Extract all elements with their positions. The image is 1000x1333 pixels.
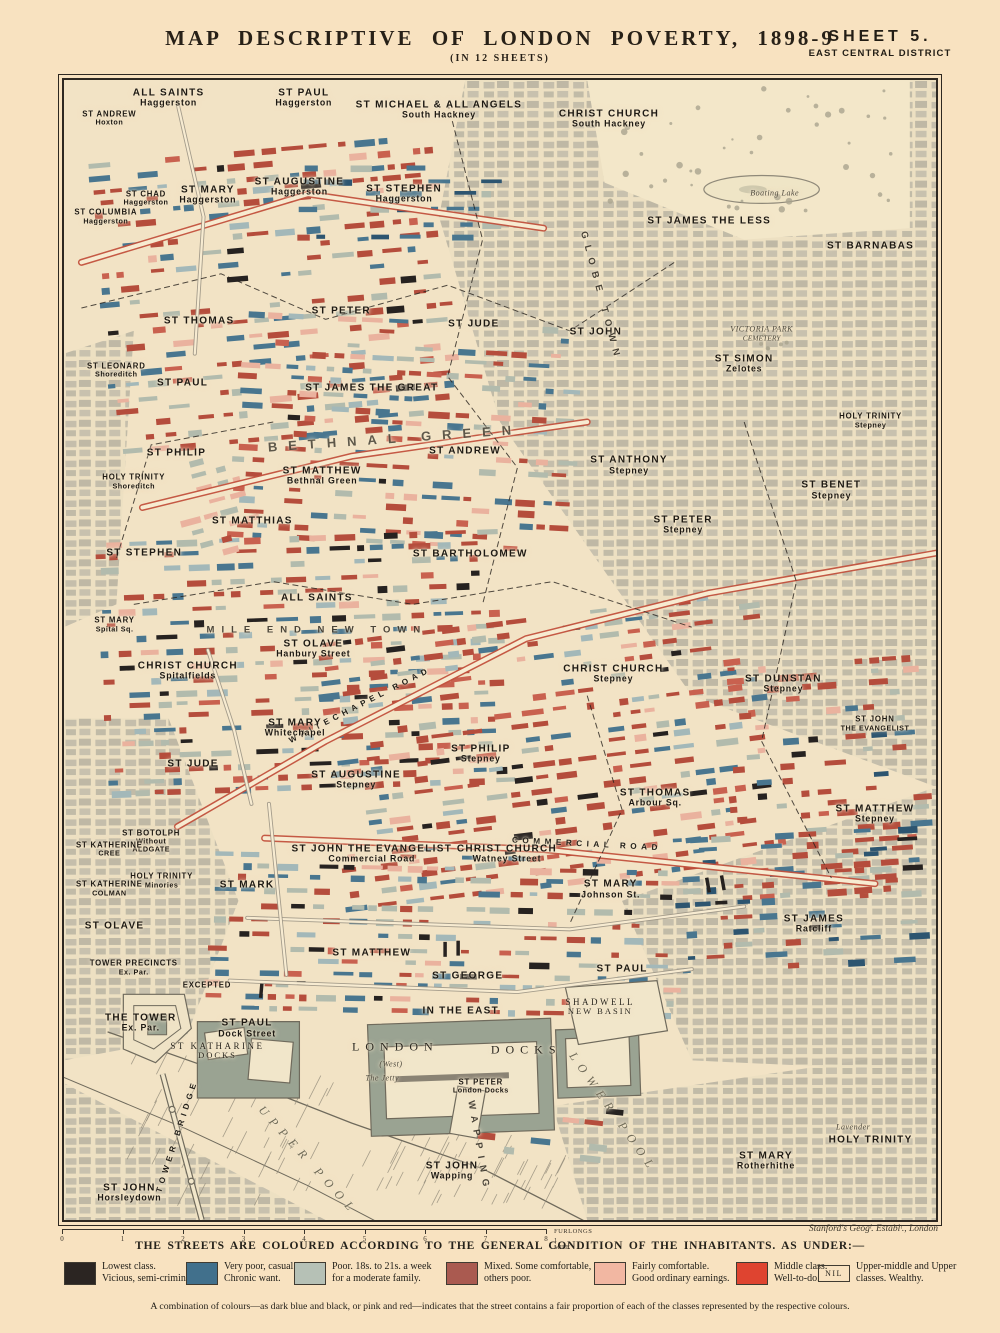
map-label: CHRIST CHURCHSouth Hackney xyxy=(559,108,659,129)
scale-tick xyxy=(546,1229,547,1234)
map-label: ST MATTHEWStepney xyxy=(835,804,914,825)
map-label: ST MARYRotherhithe xyxy=(737,1150,795,1171)
legend-item: Mixed. Some comfortable,others poor. xyxy=(446,1261,591,1285)
map-label: LONDON xyxy=(352,1040,439,1053)
map-label: Boating Lake xyxy=(750,190,799,199)
map-label: ST THOMASArbour Sq. xyxy=(620,788,691,809)
legend-label: Poor. 18s. to 21s. a weekfor a moderate … xyxy=(332,1261,431,1285)
map-label: ST PETERLondon Docks xyxy=(453,1078,509,1095)
map-label: ST JUDE xyxy=(167,758,218,769)
map-label: ST STEPHENHaggerston xyxy=(366,183,442,204)
map-label: CHRIST CHURCHSpitalfields xyxy=(138,660,238,681)
map-label: ST MICHAEL & ALL ANGELSSouth Hackney xyxy=(356,99,523,120)
scale-tick xyxy=(244,1229,245,1234)
map-label: ST BARNABAS xyxy=(827,241,914,252)
map-label: ST PAUL xyxy=(597,964,648,975)
map-label: ST PAULDock Street xyxy=(218,1018,276,1039)
map-label: ST PAUL xyxy=(157,378,208,389)
map-label: The Jetty xyxy=(365,1074,399,1083)
scale-tick xyxy=(486,1229,487,1234)
scale-tick xyxy=(62,1229,63,1234)
map-label: ST JOHN THE EVANGELISTCommercial Road xyxy=(291,844,452,865)
map-label: ST MARYHaggerston xyxy=(179,185,236,206)
sheet-info: SHEET 5. EAST CENTRAL DISTRICT xyxy=(795,28,965,59)
map-label: ALL SAINTSHaggerston xyxy=(133,88,205,109)
map-label: ST PETERStepney xyxy=(653,514,712,535)
map-label: CHRIST CHURCHWatney Street xyxy=(457,844,557,865)
map-label: ST JOHNTHE EVANGELIST xyxy=(841,716,910,733)
scale-tick xyxy=(425,1229,426,1234)
map-label: DOCKS xyxy=(491,1043,562,1056)
map-label: ST MATTHEW xyxy=(332,948,411,959)
map-label: HOLY TRINITYShoreditch xyxy=(102,474,165,491)
map-label: UPPER POOL xyxy=(256,1103,361,1218)
map-label: CHRIST CHURCHStepney xyxy=(563,663,663,684)
map-label: ST BARTHOLOMEW xyxy=(413,549,528,560)
scale-tick xyxy=(365,1229,366,1234)
map-label: ST JOHNHorsleydown xyxy=(97,1182,161,1203)
map-label: ST AUGUSTINEHaggerston xyxy=(255,177,345,198)
map-label: ST PHILIPStepney xyxy=(451,743,510,764)
scale-tick xyxy=(183,1229,184,1234)
legend-swatch xyxy=(736,1262,768,1285)
map-label: ST MARYJohnson St. xyxy=(581,879,640,900)
legend-label: Lowest class.Vicious, semi-criminal. xyxy=(102,1261,196,1285)
legend-item: Fairly comfortable.Good ordinary earning… xyxy=(594,1261,729,1285)
map-labels-layer: ALL SAINTSHaggerstonST PAULHaggerstonST … xyxy=(64,80,936,1220)
map-label: ST AUGUSTINEStepney xyxy=(311,769,401,790)
legend-item: NILUpper-middle and Upperclasses. Wealth… xyxy=(818,1261,956,1285)
map-label: ST ANTHONYStepney xyxy=(590,455,668,476)
map-label: EXCEPTED xyxy=(183,982,231,991)
map-label: ST PHILIP xyxy=(147,447,206,458)
map-label: TOWER BRIDGE xyxy=(155,1078,200,1193)
map-label: ST DUNSTANStepney xyxy=(745,674,822,695)
map-label: ST JAMES THE GREAT xyxy=(305,382,438,393)
legend-nil-box: NIL xyxy=(818,1265,850,1282)
map-label: HOLY TRINITYStepney xyxy=(839,412,902,429)
legend-swatch xyxy=(64,1262,96,1285)
scale-tick xyxy=(304,1229,305,1234)
legend-item: Poor. 18s. to 21s. a weekfor a moderate … xyxy=(294,1261,431,1285)
map-label: ST STEPHEN xyxy=(106,548,182,559)
map-label: ST MARYWhitechapel xyxy=(265,717,326,738)
district-name: EAST CENTRAL DISTRICT xyxy=(795,48,965,59)
legend-label: Fairly comfortable.Good ordinary earning… xyxy=(632,1261,729,1285)
legend-item: Lowest class.Vicious, semi-criminal. xyxy=(64,1261,196,1285)
legend-note: A combination of colours—as dark blue an… xyxy=(0,1301,1000,1312)
legend-heading: THE STREETS ARE COLOURED ACCORDING TO TH… xyxy=(0,1240,1000,1252)
map-label: ST KATHERINECREE xyxy=(76,841,143,858)
scale-unit-label: FURLONGS xyxy=(554,1228,592,1235)
map-label: ST ANDREWHoxton xyxy=(82,110,136,127)
map-label: GLOBE TOWN xyxy=(578,230,623,363)
map-label: ST MATTHIAS xyxy=(212,516,293,527)
map-label: ST KATHARINEDOCKS xyxy=(170,1041,264,1061)
map-label: (West) xyxy=(379,1060,402,1069)
map-label: ST JOHNWapping xyxy=(426,1160,478,1181)
sheet-number: SHEET 5. xyxy=(795,28,965,46)
publisher-credit: Stanford's Geogˡ. Establᵗ., London xyxy=(809,1224,938,1234)
map-label: ST GEORGE xyxy=(432,970,503,981)
map-label: THE TOWEREx. Par. xyxy=(105,1012,177,1033)
legend-label: Upper-middle and Upperclasses. Wealthy. xyxy=(856,1261,956,1285)
map-label: ST MARYSpital Sq. xyxy=(94,617,134,634)
map-label: ALL SAINTS xyxy=(281,592,353,603)
map-label: ST JAMESRatcliff xyxy=(784,913,844,934)
map-label: TOWER PRECINCTSEx. Par. xyxy=(90,960,178,977)
map-label: ST KATHERINECOLMAN xyxy=(76,881,143,898)
map-label: Lavender xyxy=(836,1123,870,1132)
map-label: ST CHADHaggerston xyxy=(123,190,168,207)
map-label: ST MARK xyxy=(220,879,275,890)
map-label: ST JAMES THE LESS xyxy=(647,216,771,227)
map-label: ST SIMONZelotes xyxy=(715,353,774,374)
map-label: ST BENETStepney xyxy=(801,480,861,501)
map-label: ST ANDREW xyxy=(429,445,501,456)
map-label: LOWER POOL xyxy=(566,1050,660,1176)
map-frame: ALL SAINTSHaggerstonST PAULHaggerstonST … xyxy=(62,78,938,1222)
map-label: ST PETER xyxy=(312,306,371,317)
map-label: ST OLAVE xyxy=(85,920,145,931)
legend-item: Middle class.Well-to-do. xyxy=(736,1261,827,1285)
map-label: HOLY TRINITY xyxy=(829,1135,913,1146)
map-label: ST LEONARDShoreditch xyxy=(87,362,146,379)
map-label: ST COLUMBIAHaggerston xyxy=(74,208,137,225)
map-label: ST PAULHaggerston xyxy=(275,88,332,109)
map-sheet: MAP DESCRIPTIVE OF LONDON POVERTY, 1898-… xyxy=(0,0,1000,1333)
legend-item: Very poor, casual.Chronic want. xyxy=(186,1261,296,1285)
legend-items: Lowest class.Vicious, semi-criminal.Very… xyxy=(0,1261,1000,1295)
map-label: ST OLAVEHanbury Street xyxy=(276,638,350,659)
map-label: SHADWELLNEW BASIN xyxy=(566,997,636,1017)
map-label: IN THE EAST xyxy=(422,1006,499,1017)
legend-swatch xyxy=(594,1262,626,1285)
map-label: MILE END NEW TOWN xyxy=(207,625,428,636)
map-label: ST JUDE xyxy=(448,318,499,329)
map-label: ST THOMAS xyxy=(164,315,235,326)
legend-swatch xyxy=(186,1262,218,1285)
legend-label: Very poor, casual.Chronic want. xyxy=(224,1261,296,1285)
legend-label: Mixed. Some comfortable,others poor. xyxy=(484,1261,591,1285)
legend-swatch xyxy=(446,1262,478,1285)
scale-tick xyxy=(123,1229,124,1234)
map-label: VICTORIA PARKCEMETERY xyxy=(730,326,793,343)
legend-swatch xyxy=(294,1262,326,1285)
map-label: ST MATTHEWBethnal Green xyxy=(283,465,362,486)
